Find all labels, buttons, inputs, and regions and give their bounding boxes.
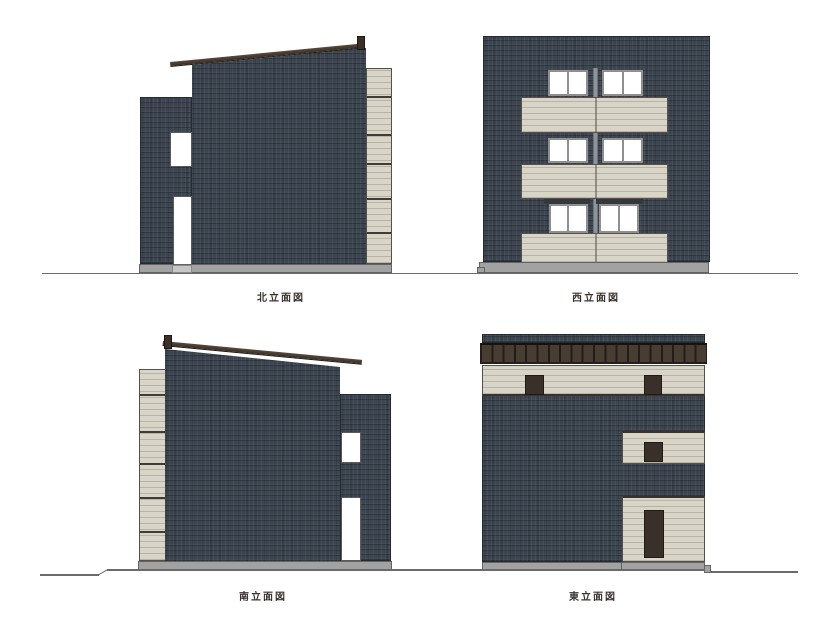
window-mullion <box>567 72 569 94</box>
west-foundation <box>479 262 709 273</box>
panel-joint <box>140 531 165 533</box>
south-window-lower <box>341 497 361 561</box>
panel-joint <box>367 163 391 165</box>
north-door-step <box>172 265 192 273</box>
window-mullion <box>567 140 569 161</box>
ground-line-upper <box>42 273 798 274</box>
ground-line-lower-main <box>107 569 705 570</box>
west-1f-balcony <box>521 233 668 263</box>
north-main-wall <box>192 44 366 264</box>
south-main-wall <box>165 346 340 561</box>
east-elevation: 東立面図 <box>440 310 839 631</box>
west-2f-balcony <box>521 164 668 199</box>
balcony-seam <box>595 98 597 133</box>
elevation-drawing-sheet: 北立面図 西立面図 <box>0 0 839 631</box>
west-1f-lintel-right <box>596 199 643 204</box>
east-entrance-door <box>644 510 664 559</box>
north-side-panel-strip <box>366 68 392 264</box>
south-elevation: 南立面図 <box>0 310 440 631</box>
panel-joint <box>140 497 165 499</box>
panel-joint <box>140 431 165 433</box>
panel-joint <box>367 232 391 234</box>
east-parapet-rib-band <box>480 343 707 364</box>
south-elevation-label: 南立面図 <box>208 588 318 603</box>
ground-line-lower-left <box>40 574 99 575</box>
west-3f-window-left <box>548 70 588 96</box>
panel-joint <box>367 96 391 98</box>
east-1f-panel <box>622 496 705 562</box>
west-elevation-label: 西立面図 <box>541 289 651 304</box>
east-3f-window-left <box>525 375 544 395</box>
panel-joint <box>367 134 391 136</box>
north-door <box>173 196 192 265</box>
balcony-seam <box>595 234 597 262</box>
west-3f-window-right <box>602 70 643 96</box>
panel-joint <box>140 463 165 465</box>
west-elevation: 西立面図 <box>440 0 839 310</box>
panel-joint <box>140 394 165 396</box>
west-1f-window-right <box>599 204 639 233</box>
south-window-upper <box>341 432 361 463</box>
north-parapet-cap <box>357 36 365 50</box>
panel-joint <box>367 198 391 200</box>
north-window <box>170 132 192 167</box>
west-2f-window-left <box>548 138 588 163</box>
east-foundation <box>482 562 705 570</box>
south-side-panel-strip <box>139 369 166 561</box>
east-foundation-joint <box>621 562 622 570</box>
balcony-seam <box>595 165 597 198</box>
window-mullion <box>618 206 620 231</box>
east-elevation-label: 東立面図 <box>538 588 648 603</box>
east-2f-window <box>644 442 664 462</box>
west-3f-balcony <box>521 97 668 134</box>
west-1f-window-left <box>549 204 588 233</box>
east-3f-panel-band <box>482 365 705 396</box>
ground-line-lower-right <box>710 571 798 572</box>
window-mullion <box>622 140 624 161</box>
north-elevation: 北立面図 <box>0 0 440 310</box>
east-2f-panel <box>622 431 705 464</box>
north-elevation-label: 北立面図 <box>226 289 336 304</box>
west-2f-window-right <box>602 138 643 163</box>
east-3f-window-right <box>644 375 663 395</box>
window-mullion <box>622 72 624 94</box>
south-parapet-cap <box>164 335 172 349</box>
west-1f-lintel-left <box>544 199 590 204</box>
window-mullion <box>567 206 569 231</box>
